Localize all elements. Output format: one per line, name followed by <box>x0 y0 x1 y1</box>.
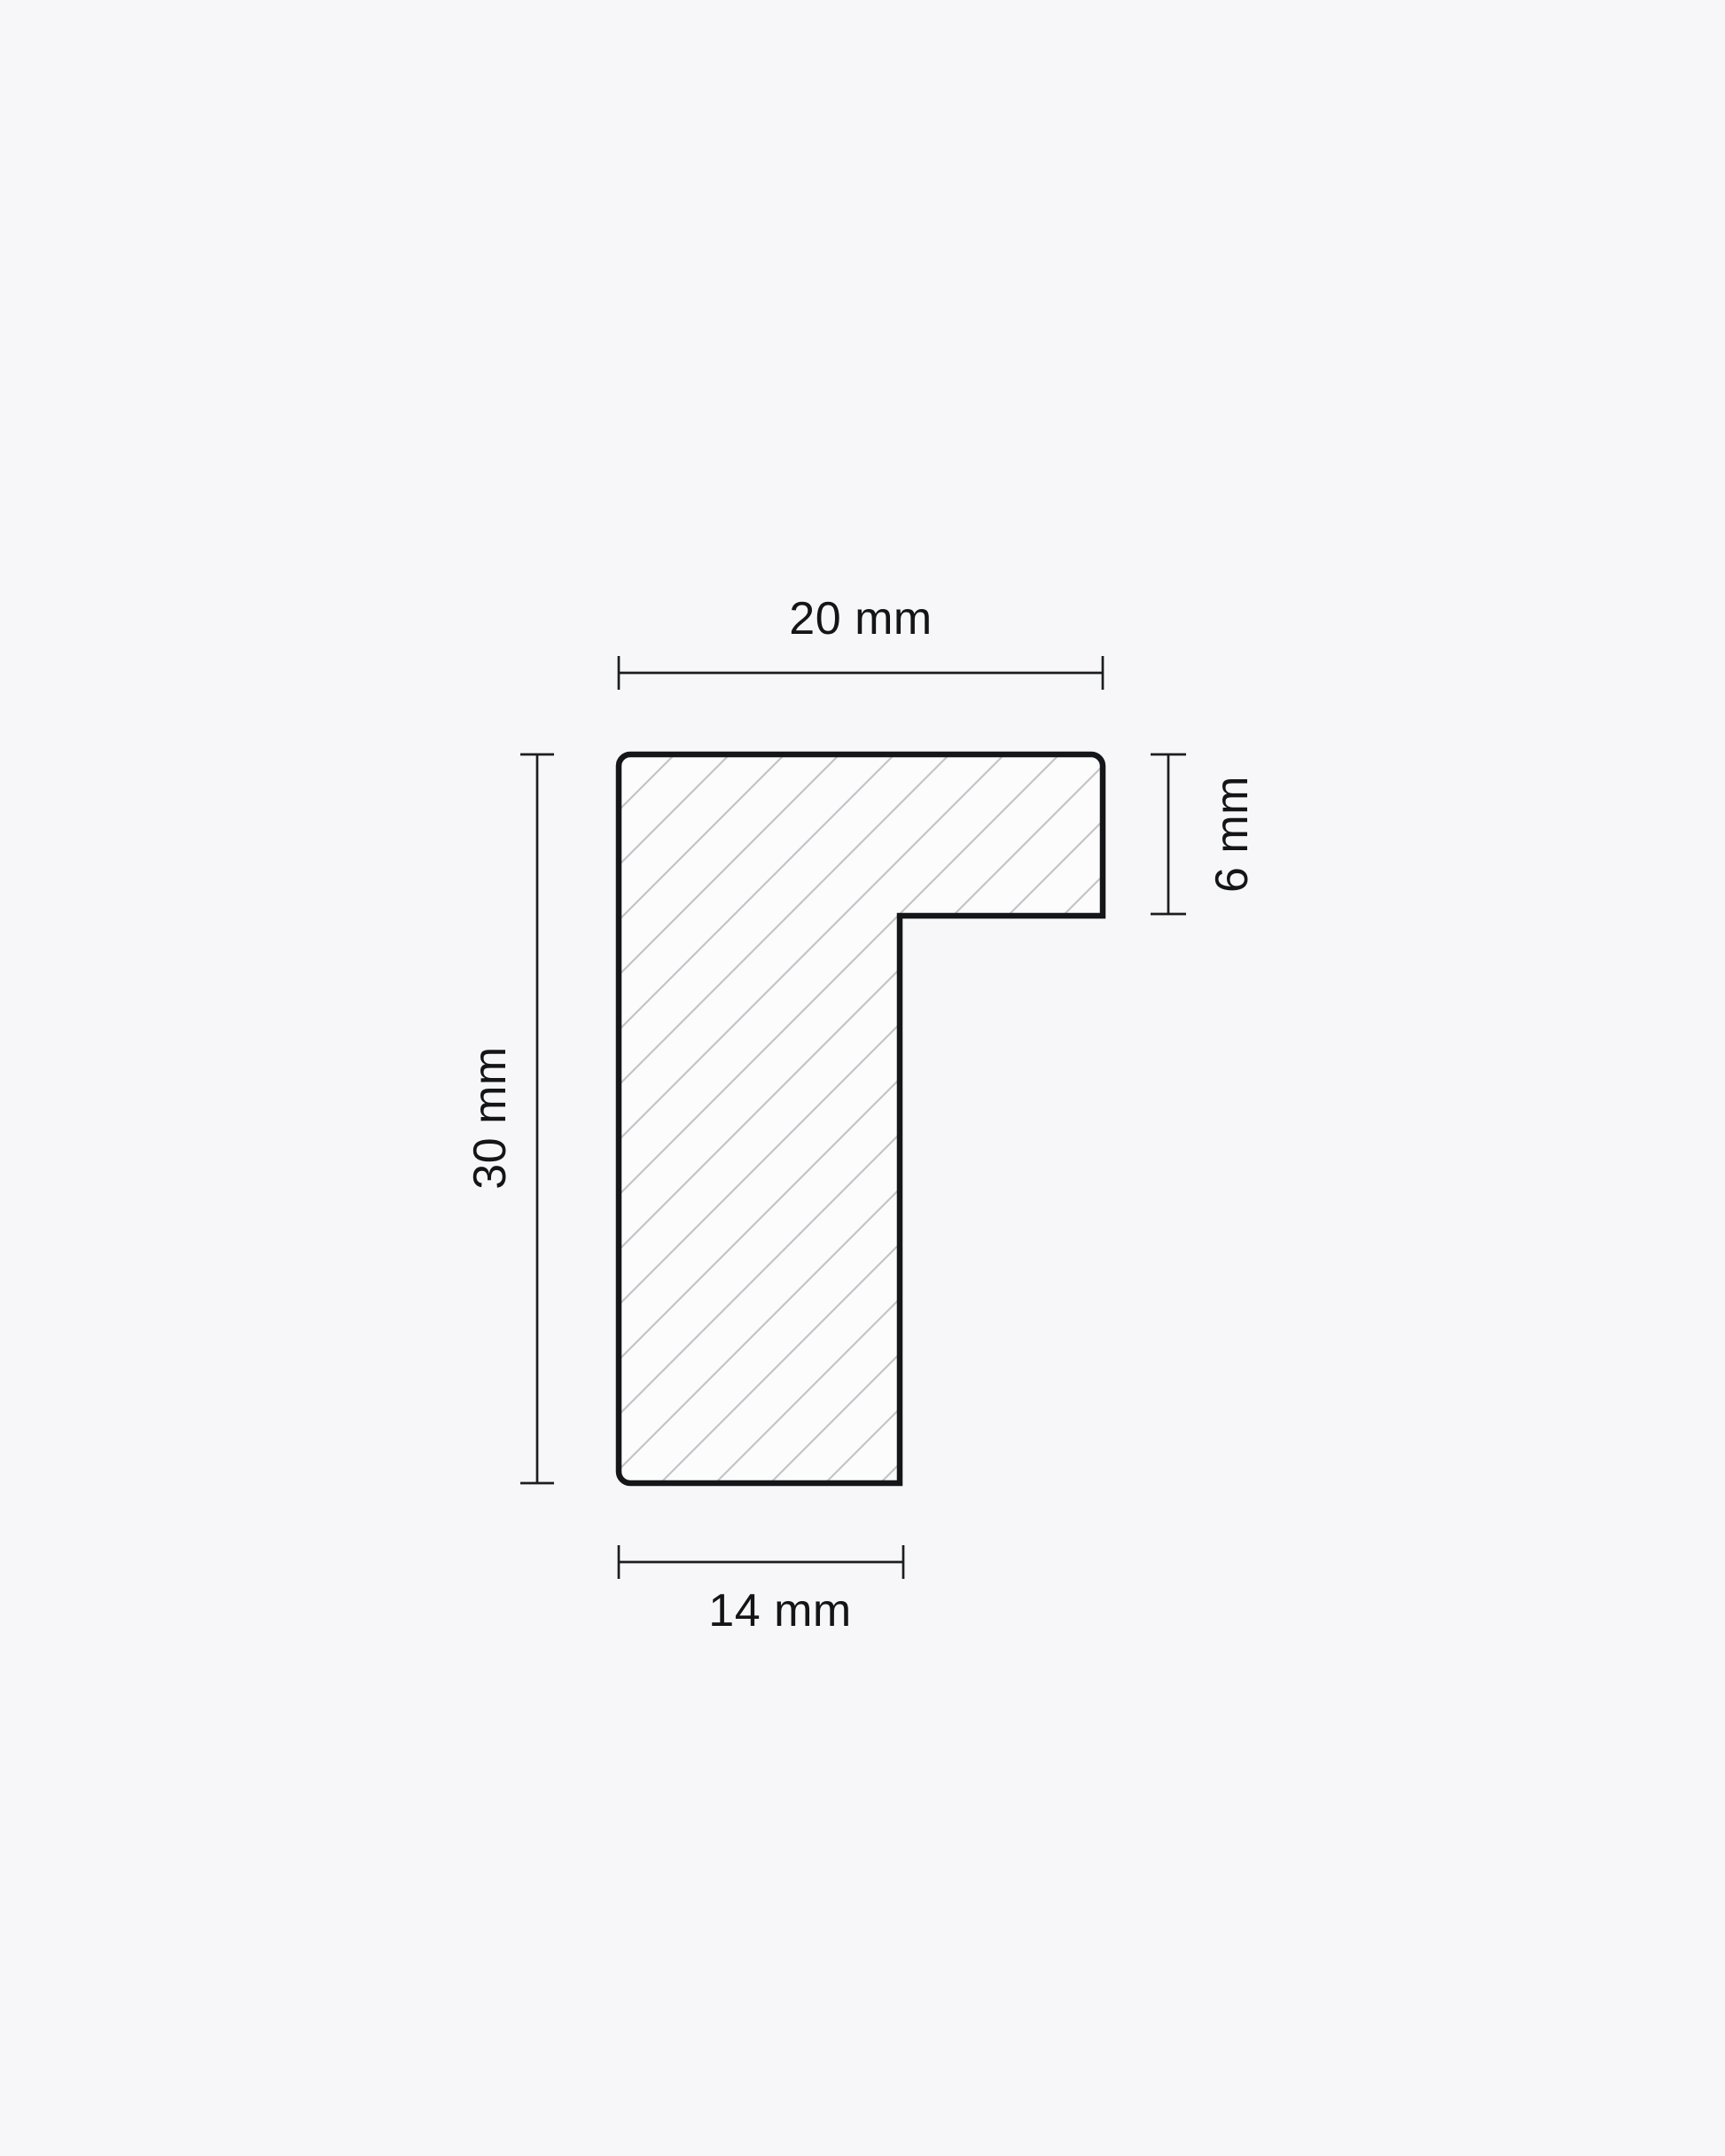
dim-label-bottom-width: 14 mm <box>708 1588 851 1634</box>
dim-label-top-width: 20 mm <box>789 596 932 642</box>
dim-top-width <box>619 656 1103 690</box>
dim-bottom-width <box>619 1545 903 1579</box>
dim-right-height <box>1151 754 1186 914</box>
dim-left-height <box>520 754 554 1483</box>
profile-drawing <box>0 0 1725 2156</box>
drawing-canvas: 20 mm 30 mm 6 mm 14 mm <box>0 0 1725 2156</box>
dim-label-right-height: 6 mm <box>1209 776 1255 893</box>
profile-shape-hatch <box>619 754 1103 1483</box>
dim-label-left-height: 30 mm <box>467 1046 513 1189</box>
